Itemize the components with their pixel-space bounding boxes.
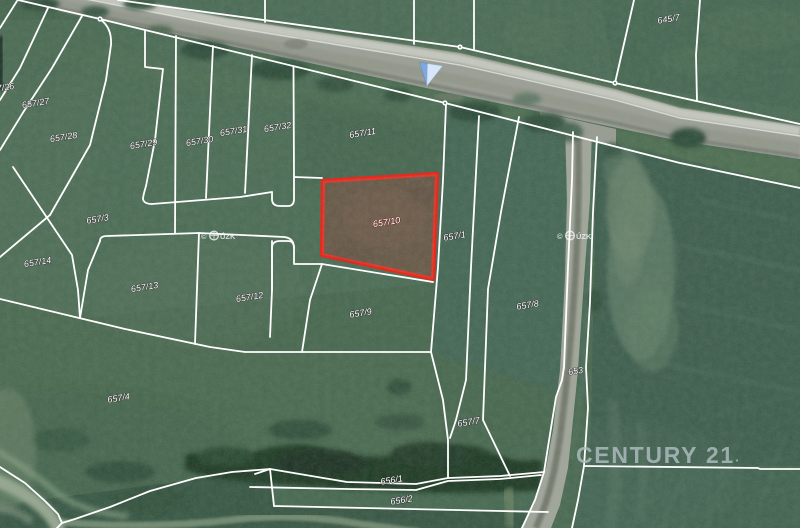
svg-text:©: ©	[201, 232, 207, 241]
svg-text:ÚZK: ÚZK	[576, 232, 592, 241]
svg-text:©: ©	[557, 232, 563, 241]
svg-text:ÚZK: ÚZK	[220, 232, 236, 241]
svg-text:CENTURY 21: CENTURY 21	[576, 442, 735, 468]
